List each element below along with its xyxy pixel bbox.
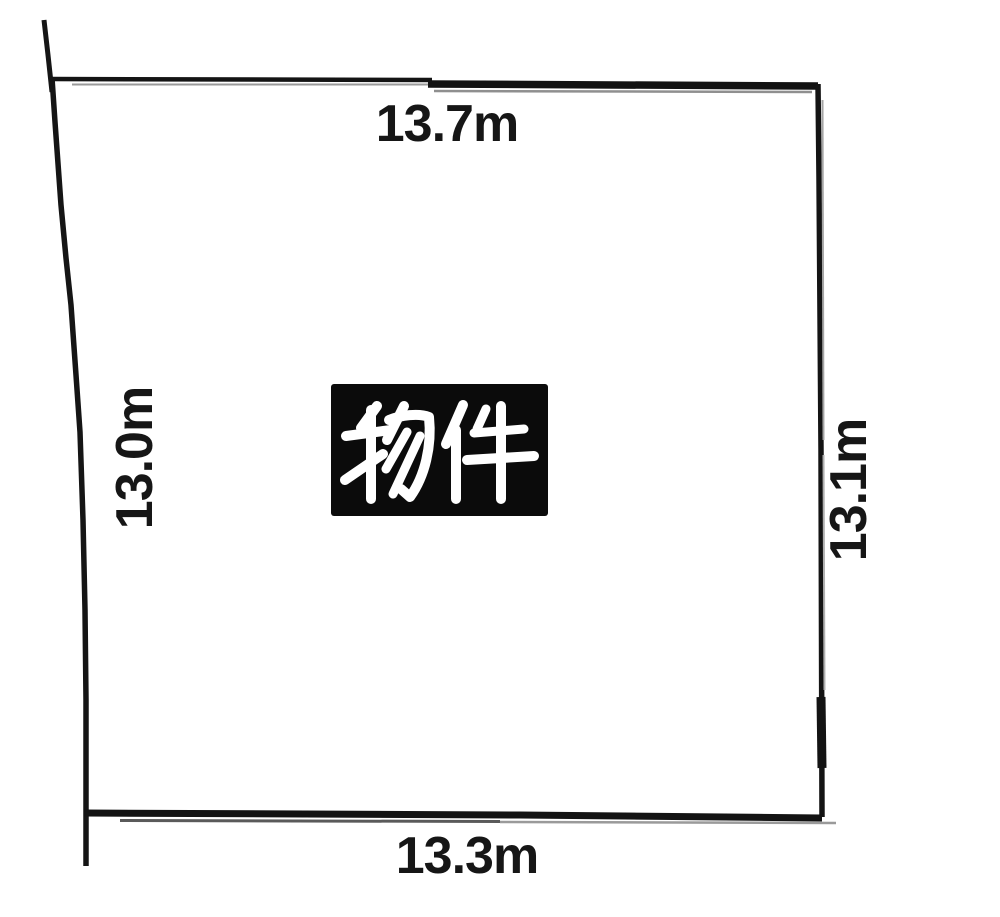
boundary-top-thick-shadow — [434, 91, 812, 92]
dimension-label-left: 13.0m — [109, 387, 161, 529]
boundary-right-thick-segment — [821, 697, 822, 768]
dimension-label-bottom: 13.3m — [372, 830, 562, 882]
property-label-badge: 物件 — [331, 384, 548, 516]
dimension-label-top: 13.7m — [352, 98, 542, 150]
boundary-top-thick — [428, 84, 818, 86]
boundary-right-shadow-upper — [823, 100, 824, 440]
kanji-ken-strokes — [446, 405, 534, 499]
property-label-kanji-drawing — [331, 384, 548, 516]
kanji-mono-strokes — [345, 406, 430, 499]
boundary-bottom — [84, 813, 822, 818]
boundary-bottom-fringe-left — [120, 821, 500, 822]
boundary-bottom-fringe-right — [500, 822, 836, 823]
boundary-left — [52, 78, 86, 866]
boundary-top-thin — [50, 79, 432, 80]
land-plot-diagram: 13.7m 13.3m 13.0m 13.1m — [0, 0, 1000, 917]
dimension-label-right: 13.1m — [823, 419, 875, 561]
